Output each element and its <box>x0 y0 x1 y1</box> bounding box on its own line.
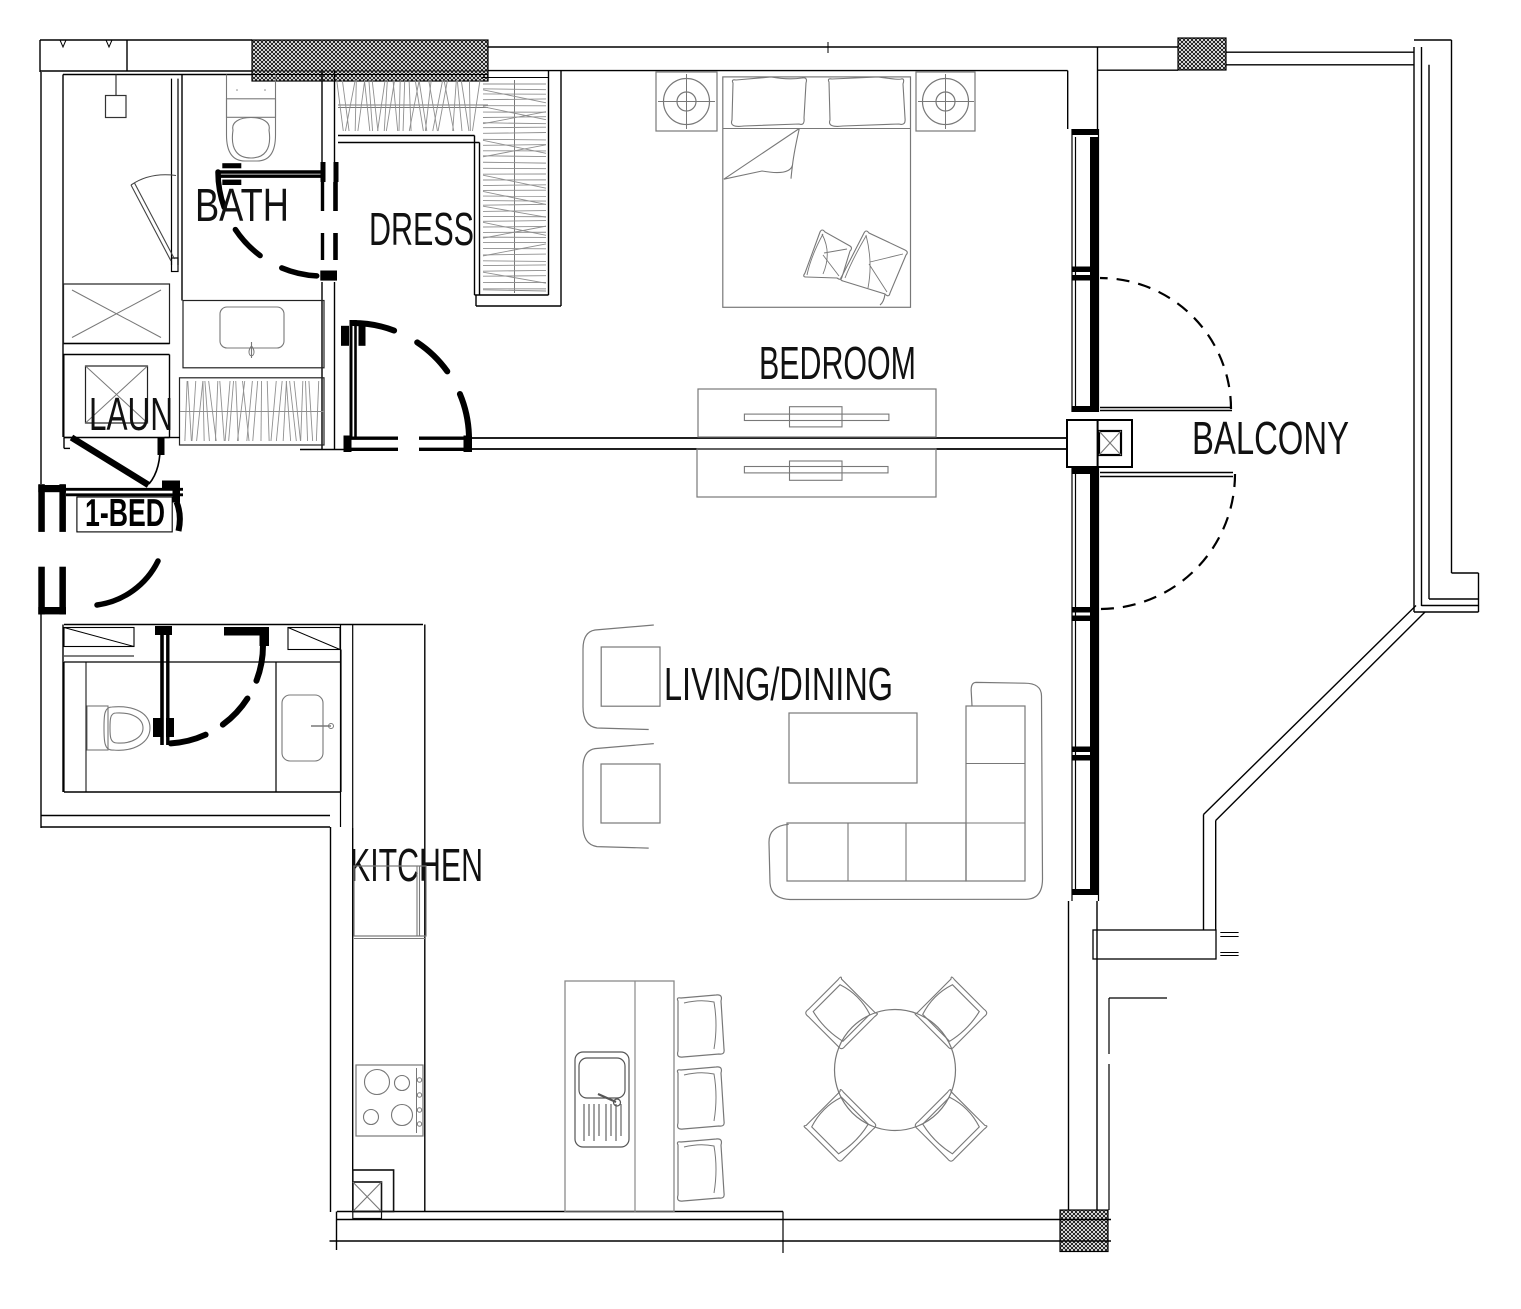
svg-text:1-BED: 1-BED <box>85 492 165 535</box>
svg-text:LIVING/DINING: LIVING/DINING <box>664 658 893 710</box>
svg-text:BALCONY: BALCONY <box>1192 412 1349 464</box>
svg-text:BATH: BATH <box>195 179 289 231</box>
svg-text:LAUN: LAUN <box>89 388 173 440</box>
svg-text:DRESS: DRESS <box>369 203 474 255</box>
svg-text:BEDROOM: BEDROOM <box>759 337 916 389</box>
